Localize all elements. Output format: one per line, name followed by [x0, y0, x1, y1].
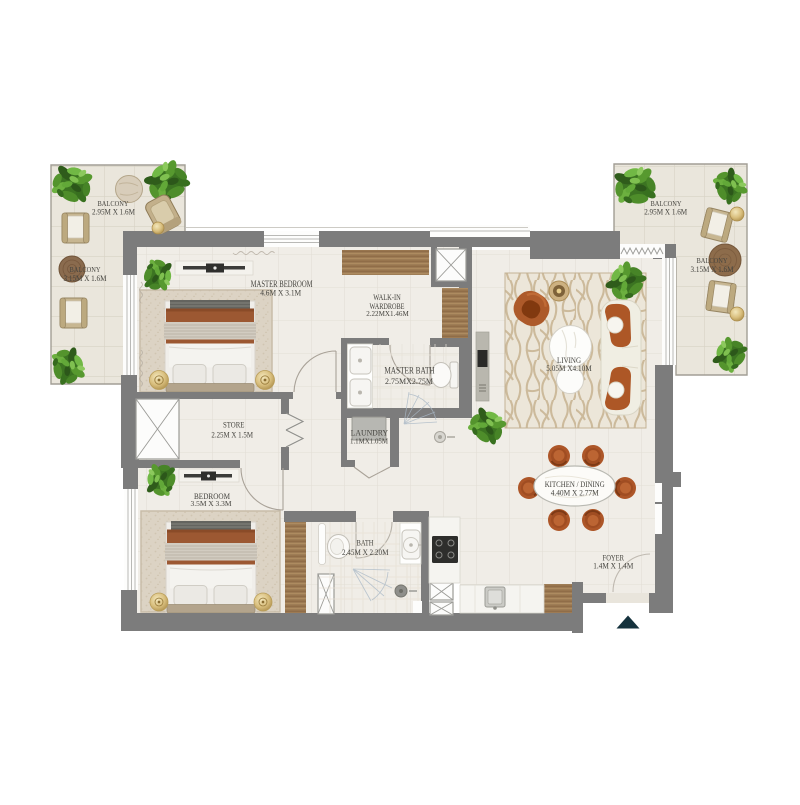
svg-text:1.1MX1.05M: 1.1MX1.05M — [350, 437, 388, 446]
svg-text:4.40M X 2.77M: 4.40M X 2.77M — [551, 489, 599, 498]
svg-text:3.15M X 1.6M: 3.15M X 1.6M — [691, 265, 734, 274]
svg-text:2.95M X 1.6M: 2.95M X 1.6M — [644, 208, 687, 217]
svg-text:2.25M X 1.5M: 2.25M X 1.5M — [211, 430, 253, 439]
svg-text:BATH: BATH — [357, 539, 374, 548]
svg-text:3.15M X 1.6M: 3.15M X 1.6M — [64, 274, 107, 283]
svg-text:2.95M X 1.6M: 2.95M X 1.6M — [92, 208, 135, 217]
svg-text:4.6M X 3.1M: 4.6M X 3.1M — [260, 289, 301, 298]
svg-text:1.4M X 1.4M: 1.4M X 1.4M — [593, 562, 633, 571]
svg-text:BALCONY: BALCONY — [697, 256, 728, 265]
svg-text:WALK-IN: WALK-IN — [373, 293, 401, 302]
svg-text:2.22MX1.46M: 2.22MX1.46M — [366, 309, 409, 318]
svg-text:MASTER BEDROOM: MASTER BEDROOM — [251, 279, 313, 289]
svg-text:2.45M X 2.20M: 2.45M X 2.20M — [342, 548, 389, 557]
svg-text:MASTER BATH: MASTER BATH — [384, 366, 435, 376]
svg-text:2.75MX2.75M: 2.75MX2.75M — [385, 377, 434, 386]
svg-text:STORE: STORE — [223, 421, 245, 430]
svg-text:BALCONY: BALCONY — [70, 265, 101, 274]
svg-text:5.05M X4.10M: 5.05M X4.10M — [546, 364, 591, 373]
svg-text:3.5M X 3.3M: 3.5M X 3.3M — [191, 499, 232, 508]
